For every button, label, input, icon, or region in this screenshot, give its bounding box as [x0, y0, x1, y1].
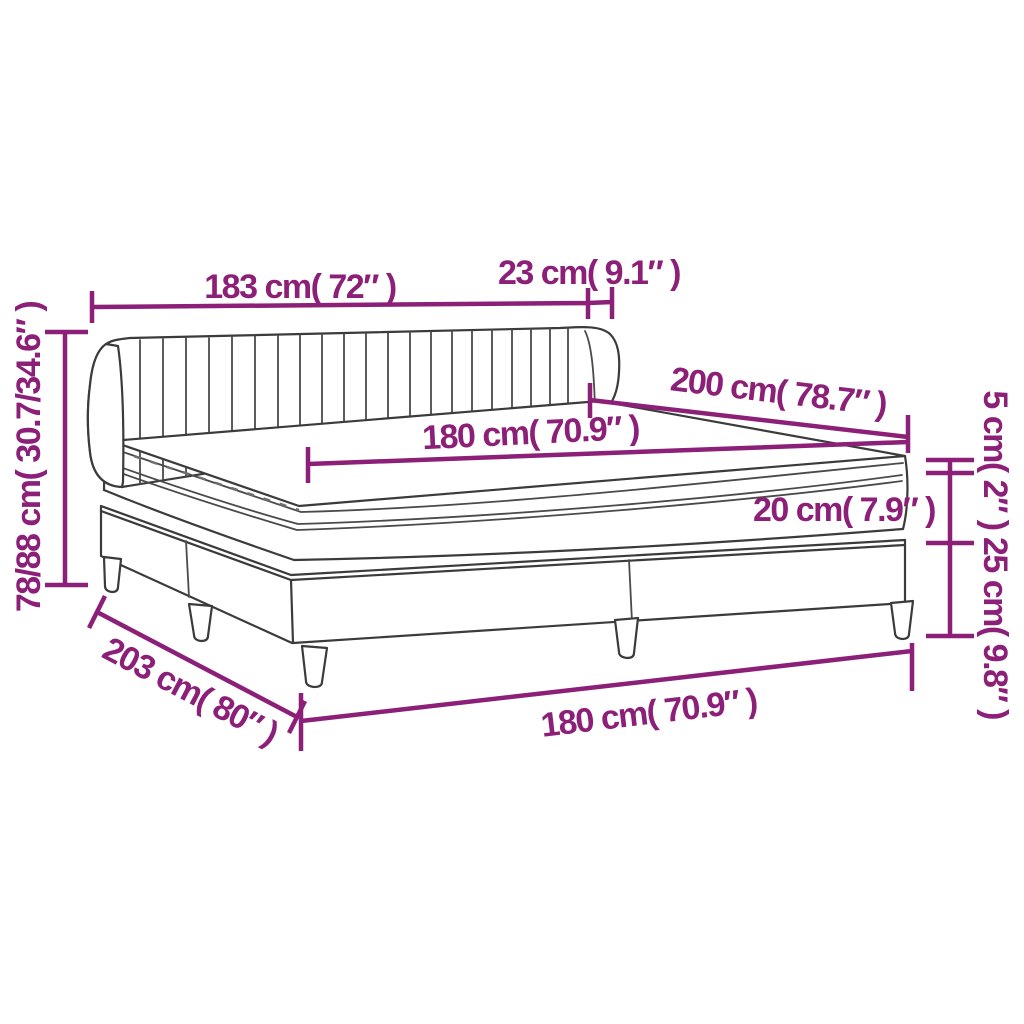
bed-leg [615, 618, 638, 658]
product-dimension-diagram: 183 cm( 72″ ) 23 cm( 9.1″ ) 200 cm( 78.7… [0, 0, 1024, 1024]
box-spring-seams [186, 541, 632, 622]
bed-leg [891, 601, 913, 639]
dim-headboard-depth-label: 23 cm( 9.1″ ) [498, 254, 680, 292]
bed-leg [189, 604, 212, 641]
dim-headboard-width-label: 183 cm( 72″ ) [204, 268, 396, 306]
bed-leg [302, 646, 327, 687]
dim-mattress-height-label: 20 cm( 7.9″ ) [753, 491, 935, 529]
dim-base-height-label: 25 cm( 9.8″ ) [976, 537, 1014, 719]
dim-topper-height-label: 5 cm( 2″ ) [976, 390, 1014, 529]
dim-total-height-label: 78/88 cm( 30.7/34.6″ ) [10, 302, 48, 612]
dim-height-stack-line [926, 460, 974, 636]
bed-leg [104, 557, 121, 592]
dim-total-height-line [45, 332, 88, 585]
headboard-left-roll [88, 344, 124, 487]
dim-total-length-label: 203 cm( 80″ ) [97, 630, 284, 753]
bed-dimension-drawing: 183 cm( 72″ ) 23 cm( 9.1″ ) 200 cm( 78.7… [0, 0, 1024, 1024]
